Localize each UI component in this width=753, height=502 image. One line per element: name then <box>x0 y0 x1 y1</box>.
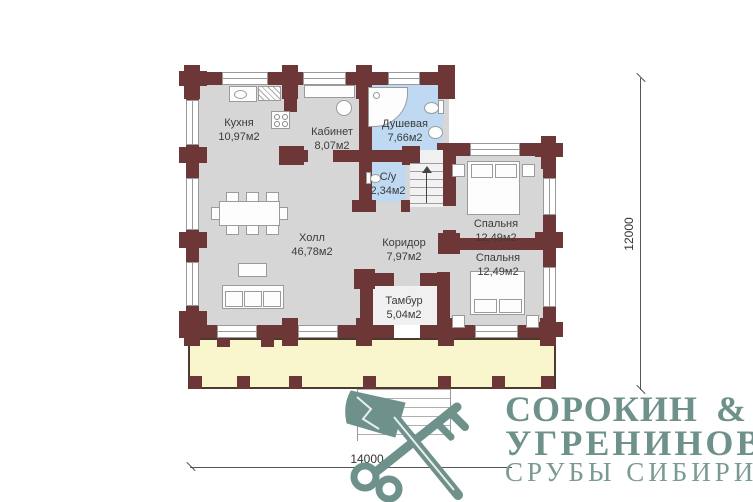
room-name: С/у <box>356 170 420 184</box>
kitchen-sink-unit <box>229 86 257 102</box>
room-name: Коридор <box>366 236 442 250</box>
room-name: Кабинет <box>294 125 370 139</box>
log-joint <box>282 65 298 99</box>
log-joint <box>184 318 200 346</box>
window <box>298 325 338 338</box>
room-label-bedroom1: Спальня 12,49м2 <box>458 217 534 245</box>
room-area: 5,04м2 <box>366 308 442 322</box>
room-label-shower: Душевая 7,66м2 <box>367 117 443 145</box>
window <box>470 143 520 156</box>
log-joint <box>179 232 207 248</box>
window <box>186 262 199 306</box>
sofa <box>222 285 284 309</box>
log-joint <box>354 269 375 289</box>
nightstand <box>452 315 465 328</box>
nightstand <box>522 164 535 177</box>
log-joint <box>179 147 207 163</box>
room-label-corridor: Коридор 7,97м2 <box>366 236 442 264</box>
room-name: Спальня <box>458 217 534 231</box>
room-label-hall: Холл 46,78м2 <box>274 231 350 259</box>
logo-tagline: СРУБЫ СИБИРИ <box>505 459 753 485</box>
room-name: Спальня <box>460 251 536 265</box>
window <box>543 178 556 215</box>
office-chair <box>336 100 352 116</box>
dimension-label-height: 12000 <box>622 199 636 269</box>
wall-vestibule-top <box>420 273 450 286</box>
log-joint <box>356 318 372 346</box>
terrace-post <box>541 376 554 389</box>
wall-wc-bottom <box>401 200 410 212</box>
dimension-tick <box>636 73 645 82</box>
room-name: Тамбур <box>366 294 442 308</box>
toilet-bowl <box>424 102 439 114</box>
door-opening <box>394 325 420 338</box>
sofa-cushion <box>244 291 262 307</box>
sofa-cushion <box>263 291 281 307</box>
log-joint <box>535 322 563 337</box>
sink-bowl <box>234 90 247 99</box>
room-label-office: Кабинет 8,07м2 <box>294 125 370 153</box>
terrace-post <box>289 376 302 389</box>
log-joint <box>282 318 298 346</box>
terrace-post <box>492 376 505 389</box>
room-area: 7,97м2 <box>366 250 442 264</box>
room-label-kitchen: Кухня 10,97м2 <box>201 116 277 144</box>
log-joint <box>179 71 207 86</box>
log-joint <box>535 232 563 248</box>
window <box>186 178 199 230</box>
room-area: 7,66м2 <box>367 131 443 145</box>
stair-arrow-line <box>426 171 427 203</box>
window <box>475 325 518 338</box>
burner <box>282 114 288 120</box>
nightstand <box>526 315 539 328</box>
log-joint <box>535 143 563 157</box>
room-name: Душевая <box>367 117 443 131</box>
terrace-post <box>261 338 274 347</box>
terrace-post <box>237 376 250 389</box>
room-name: Кухня <box>201 116 277 130</box>
shower-drain <box>373 92 380 99</box>
pillow <box>495 164 517 178</box>
window <box>543 267 556 307</box>
window <box>303 72 346 85</box>
stair-landing <box>420 150 443 163</box>
pillow <box>499 299 522 313</box>
floor-plan-canvas: Кухня 10,97м2 Кабинет 8,07м2 Душевая 7,6… <box>0 0 753 502</box>
bed <box>467 161 520 215</box>
window <box>186 100 199 145</box>
dining-chair <box>246 225 259 235</box>
logo-name-top-word: СОРОКИН <box>505 393 698 426</box>
dining-chair <box>279 207 288 220</box>
logo-name-top: СОРОКИН & <box>505 393 747 426</box>
window <box>388 72 420 85</box>
room-area: 10,97м2 <box>201 130 277 144</box>
nightstand <box>452 164 465 177</box>
dining-chair <box>226 225 239 235</box>
dining-table <box>219 201 280 226</box>
room-area: 12,49м2 <box>458 231 534 245</box>
terrace-post <box>217 338 230 347</box>
terrace-post <box>189 376 202 389</box>
stair-arrow-head <box>422 166 432 173</box>
room-name: Холл <box>274 231 350 245</box>
room-area: 12,49м2 <box>460 265 536 279</box>
pillow <box>474 299 497 313</box>
room-area: 8,07м2 <box>294 139 370 153</box>
window <box>217 325 257 338</box>
axe-and-key-icon <box>333 385 493 502</box>
burner <box>282 121 288 127</box>
window <box>222 72 268 85</box>
wall-wc-bottom <box>352 200 376 212</box>
log-joint <box>438 65 455 99</box>
room-label-vestibule: Тамбур 5,04м2 <box>366 294 442 322</box>
room-label-bedroom2: Спальня 12,49м2 <box>460 251 536 279</box>
coffee-table <box>238 263 267 277</box>
kitchen-counter <box>258 86 281 101</box>
sofa-cushion <box>225 291 243 307</box>
room-label-wc: С/у 2,34м2 <box>356 170 420 198</box>
office-desk <box>304 85 355 98</box>
room-area: 2,34м2 <box>356 184 420 198</box>
dimension-line-vertical <box>640 78 641 390</box>
room-area: 46,78м2 <box>274 245 350 259</box>
logo-ampersand: & <box>716 393 747 426</box>
pillow <box>471 164 493 178</box>
logo-name-bottom: УГРЕНИНОВ <box>505 427 753 460</box>
